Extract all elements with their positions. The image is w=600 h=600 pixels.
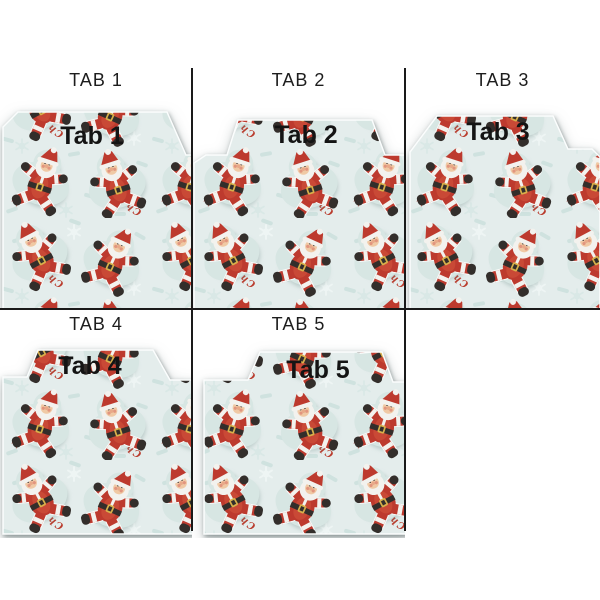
folder-preview-4: Tab 4 [0,310,192,538]
tab-option-label-3: TAB 3 [405,70,600,91]
tab-option-label-2: TAB 2 [192,70,405,91]
grid-border-vertical-2-top [404,68,406,310]
grid-border-vertical-2-bottom [404,308,406,531]
folder-tab-text-3: Tab 3 [466,118,529,146]
tab-option-cell-1[interactable]: TAB 1 Tab 1 [0,68,192,308]
grid-border-vertical-1-top [191,68,193,310]
folder-tab-text-1: Tab 1 [60,122,124,150]
folder-tab-text-5: Tab 5 [286,356,350,384]
tab-option-cell-2[interactable]: TAB 2 Tab 2 [192,68,405,308]
folder-preview-3: Tab 3 [405,68,600,308]
folder-preview-2: Tab 2 [192,68,405,308]
empty-cell [405,310,600,531]
tab-option-cell-5[interactable]: TAB 5 Tab 5 [192,310,405,538]
tab-option-label-1: TAB 1 [0,70,192,91]
folder-preview-5: Tab 5 [192,310,405,538]
tab-option-label-4: TAB 4 [0,314,192,335]
tab-option-label-5: TAB 5 [192,314,405,335]
tab-option-cell-4[interactable]: TAB 4 Tab 4 [0,310,192,538]
folder-tab-text-2: Tab 2 [274,121,337,149]
grid-border-vertical-1-bottom [191,308,193,531]
folder-preview-1: Tab 1 [0,68,192,308]
grid-border-horizontal [0,308,600,310]
folder-tab-text-4: Tab 4 [58,352,122,380]
tab-options-preview: Christmas Merry Merry Christmas TAB 1 Ta… [0,0,600,600]
tab-option-cell-3[interactable]: TAB 3 Tab 3 [405,68,600,308]
